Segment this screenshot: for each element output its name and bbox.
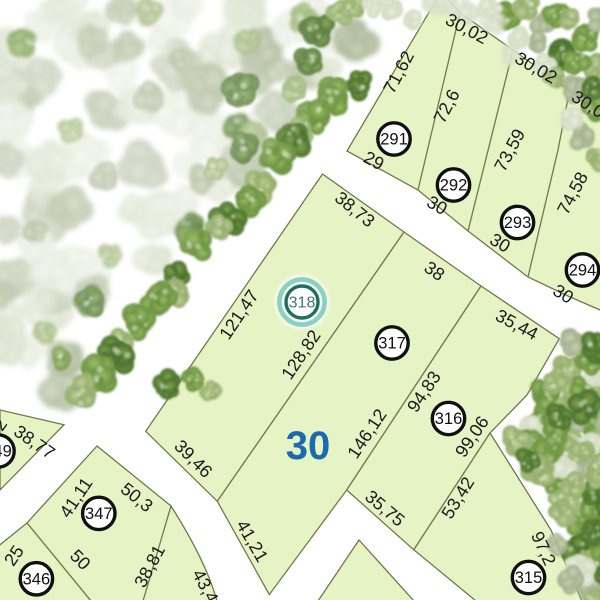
svg-text:294: 294 xyxy=(569,262,597,280)
svg-text:293: 293 xyxy=(504,214,532,232)
svg-text:318: 318 xyxy=(289,295,316,312)
svg-text:317: 317 xyxy=(378,335,406,353)
svg-text:315: 315 xyxy=(515,569,543,587)
svg-text:30: 30 xyxy=(286,424,331,468)
svg-text:346: 346 xyxy=(23,570,51,588)
svg-text:316: 316 xyxy=(435,410,463,428)
svg-text:292: 292 xyxy=(440,177,468,195)
svg-text:349: 349 xyxy=(0,443,12,461)
svg-text:291: 291 xyxy=(380,131,408,149)
svg-text:347: 347 xyxy=(85,505,113,523)
